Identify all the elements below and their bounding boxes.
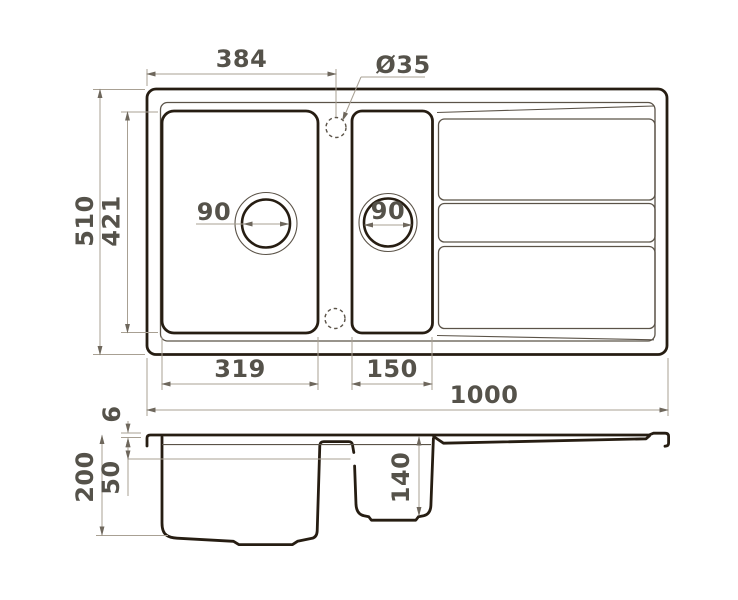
dim-label-510: 510 <box>71 195 99 247</box>
faucet-hole-bottom <box>325 309 345 329</box>
dim-label-384: 384 <box>216 45 268 73</box>
dim-label-421: 421 <box>98 195 126 247</box>
dim-label-d35: Ø35 <box>375 51 430 79</box>
dim-label-half-drain-90: 90 <box>371 197 405 225</box>
drainboard-panel-middle <box>439 204 656 243</box>
dim-label-6: 6 <box>98 405 126 422</box>
drainboard-panel-bottom <box>439 247 656 329</box>
drainboard-slope-line-top <box>437 106 654 113</box>
dim-label-1000: 1000 <box>450 381 519 409</box>
dim-label-140: 140 <box>387 452 415 504</box>
dim-label-150: 150 <box>366 355 418 383</box>
dim-main-bowl-width: 319 <box>162 337 318 390</box>
section-main-bowl-profile <box>162 437 354 545</box>
main-bowl <box>162 111 318 333</box>
section-drainboard-profile <box>434 436 650 443</box>
dim-rim-height: 6 <box>98 405 141 450</box>
drawing-canvas: 384 Ø35 510 421 90 90 <box>0 0 738 600</box>
dim-half-bowl-depth: 140 <box>387 437 419 516</box>
dim-half-drain: 90 <box>365 197 412 225</box>
drainboard-slope-line-bottom <box>437 336 654 340</box>
dim-half-bowl-width: 150 <box>352 337 432 390</box>
dim-label-50: 50 <box>97 460 125 494</box>
dim-label-319: 319 <box>214 355 266 383</box>
drainboard-panel-top <box>439 119 656 200</box>
sink-technical-drawing: 384 Ø35 510 421 90 90 <box>0 0 738 600</box>
dim-bowl-length: 421 <box>98 112 159 333</box>
dim-label-200: 200 <box>71 451 99 503</box>
dim-faucet-offset: 384 <box>147 45 336 117</box>
dim-label-main-drain-90: 90 <box>197 198 231 226</box>
